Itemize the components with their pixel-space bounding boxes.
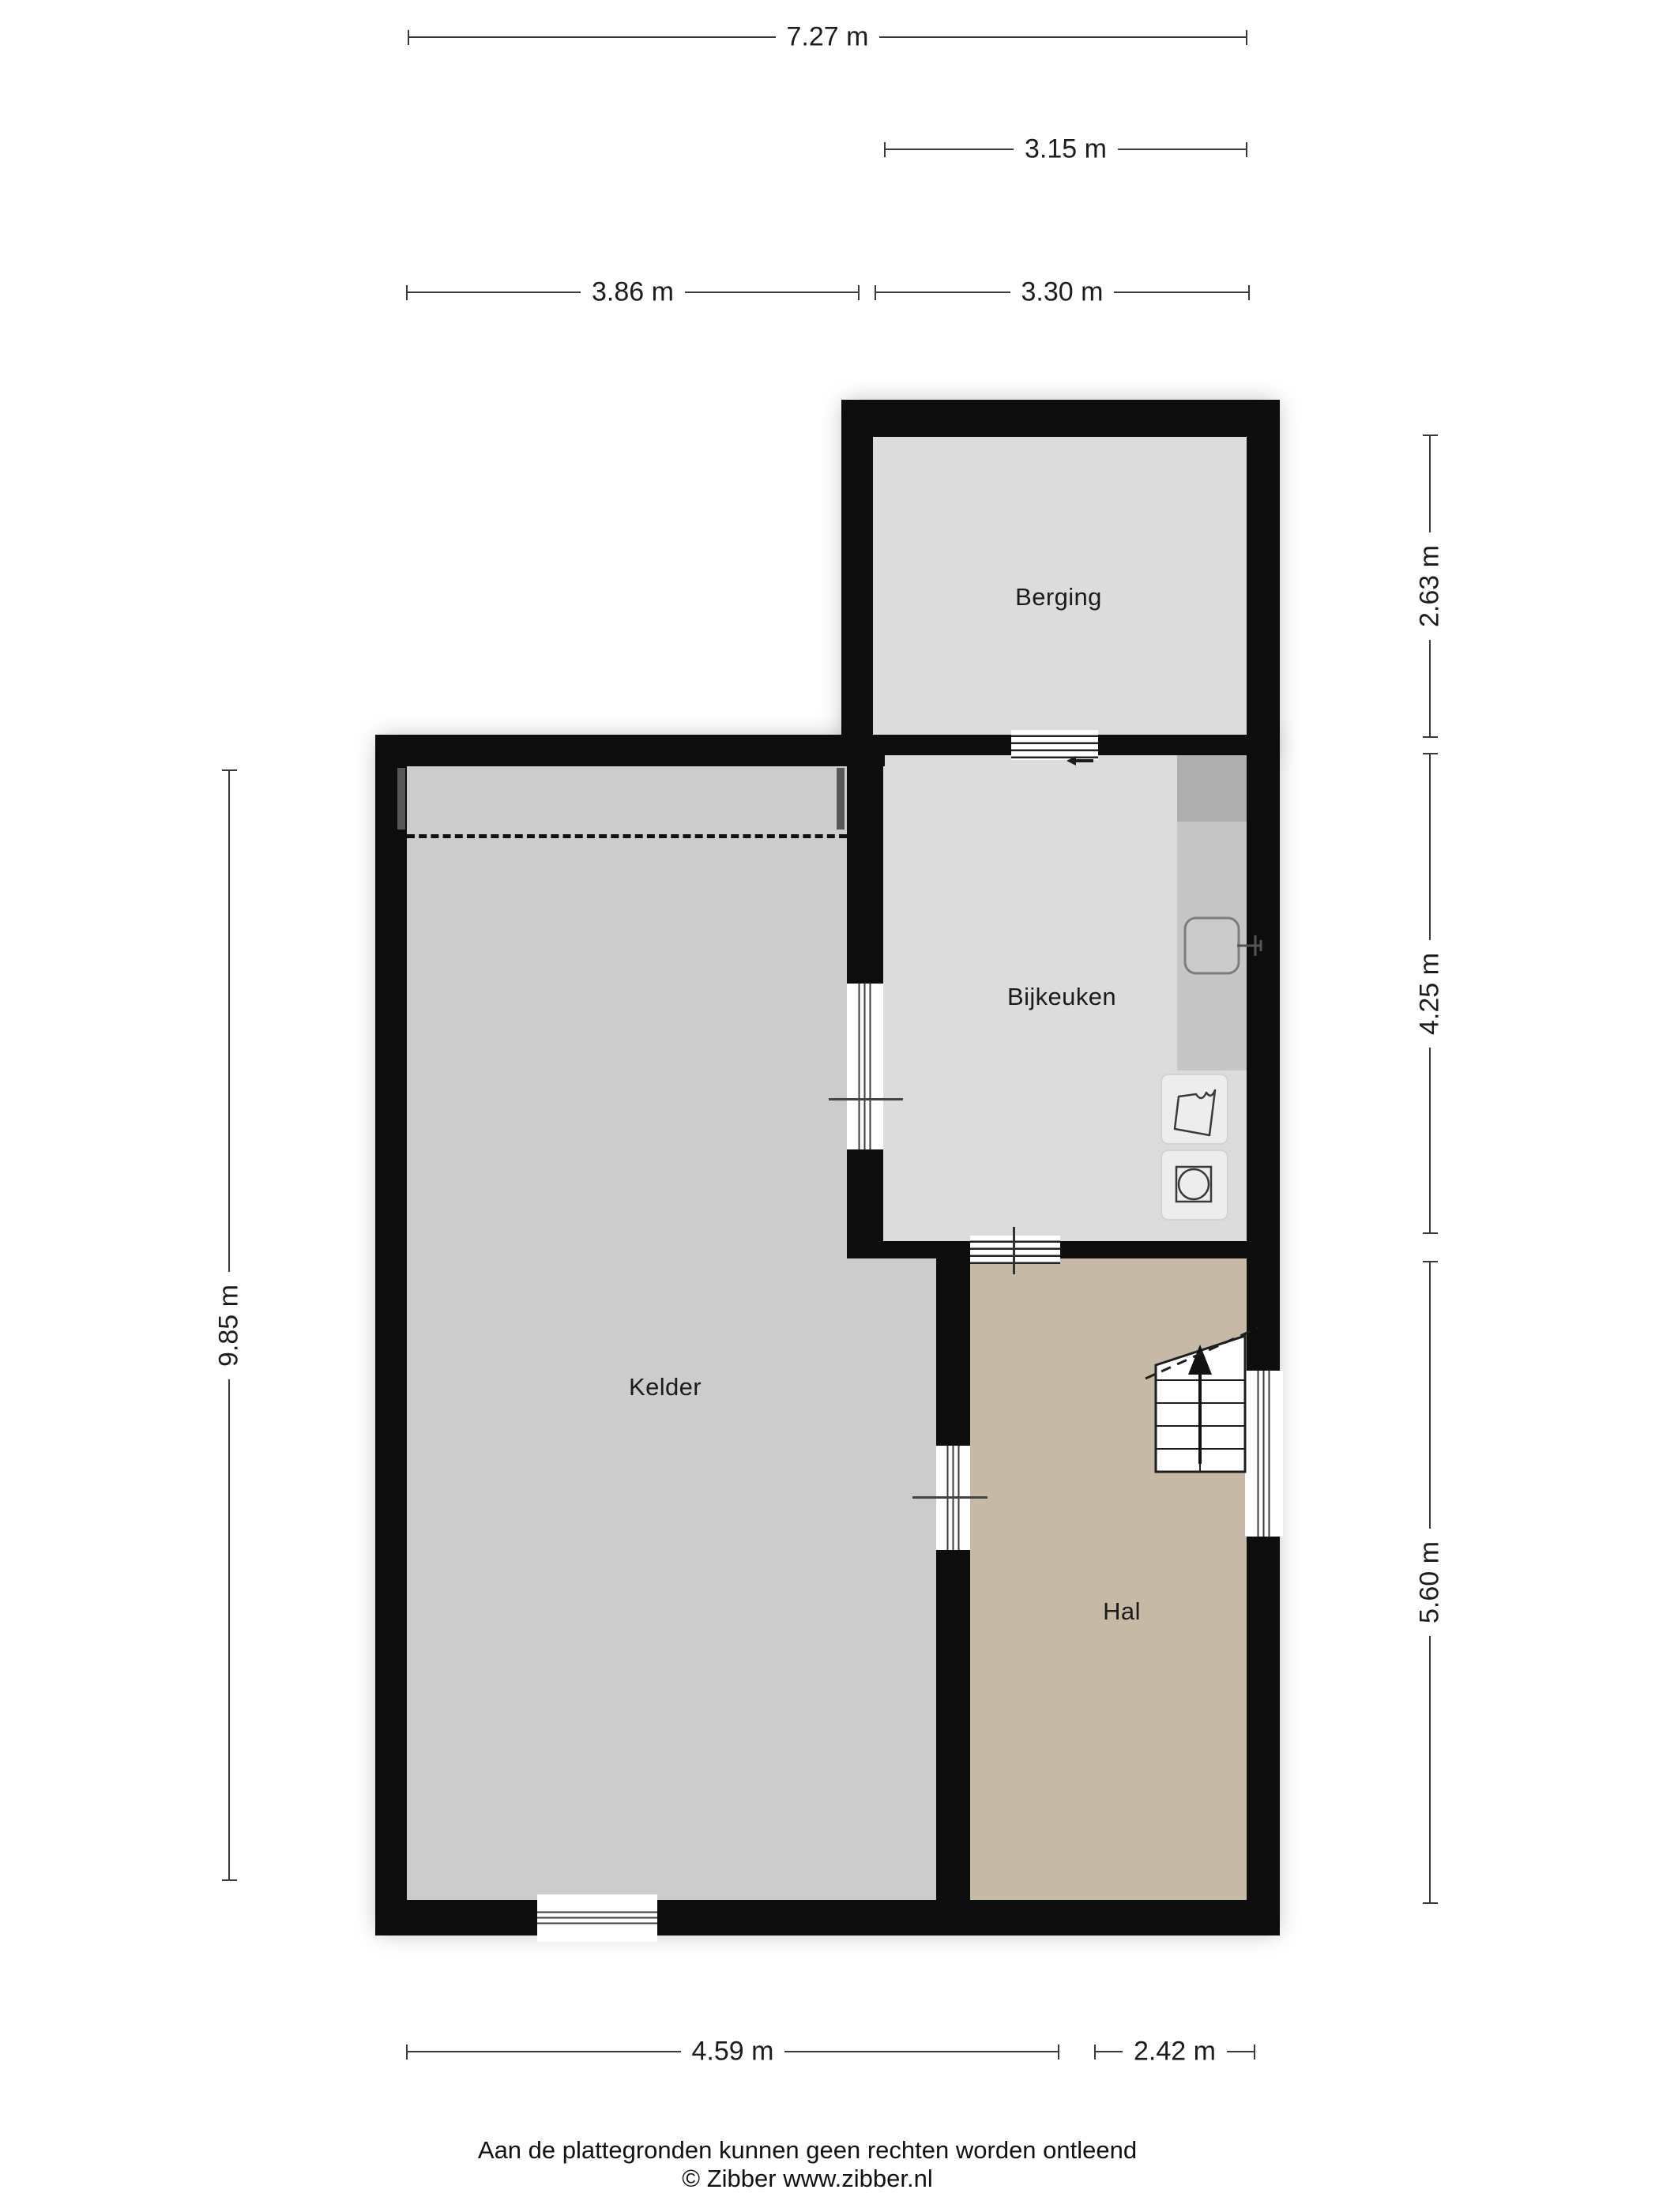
room-label-bijkeuken: Bijkeuken bbox=[1007, 983, 1116, 1011]
dim-bottom-hal: 2.42 m bbox=[1095, 2051, 1255, 2052]
dim-label: 3.15 m bbox=[1014, 134, 1118, 165]
dim-right-bijkeuken: 4.25 m bbox=[1429, 754, 1431, 1233]
door-bijkeuken-hal bbox=[970, 1236, 1060, 1264]
wall-kelder-top bbox=[375, 735, 885, 766]
footer-disclaimer: Aan de plattegronden kunnen geen rechten… bbox=[478, 2136, 1137, 2165]
window-glazing bbox=[537, 1912, 657, 1925]
dim-top-total: 7.27 m bbox=[408, 36, 1247, 38]
door-marker-line bbox=[1013, 1227, 1015, 1274]
window-kelder-bottom bbox=[537, 1894, 657, 1942]
kitchen-counter-upper bbox=[1177, 754, 1247, 822]
wall-berging-top bbox=[841, 400, 1280, 437]
floorplan-page: { "rooms": { "berging": { "label": "Berg… bbox=[0, 0, 1659, 2212]
room-label-berging: Berging bbox=[1015, 583, 1102, 611]
dim-label: 2.63 m bbox=[1415, 532, 1446, 640]
kelder-jamb-left bbox=[397, 768, 405, 829]
door-berging-bijkeuken bbox=[1011, 730, 1098, 760]
footer-copyright: © Zibber www.zibber.nl bbox=[682, 2165, 932, 2193]
wall-kelder-left bbox=[375, 735, 407, 1935]
dim-mid-right: 3.30 m bbox=[875, 292, 1249, 293]
dim-label: 3.30 m bbox=[1010, 277, 1115, 308]
hal-floor bbox=[970, 1258, 1247, 1900]
wall-berging-left bbox=[841, 400, 873, 754]
room-label-hal: Hal bbox=[1103, 1597, 1141, 1626]
kelder-floor bbox=[407, 766, 847, 1900]
kitchen-counter bbox=[1177, 822, 1247, 1070]
dim-label: 4.59 m bbox=[681, 2037, 785, 2067]
dim-left-total: 9.85 m bbox=[228, 770, 230, 1880]
wall-bottom-exterior bbox=[375, 1900, 1280, 1935]
dim-label: 3.86 m bbox=[581, 277, 685, 308]
room-label-kelder: Kelder bbox=[629, 1373, 702, 1401]
dim-bottom-kelder: 4.59 m bbox=[407, 2051, 1059, 2052]
dim-label: 7.27 m bbox=[776, 22, 880, 53]
kelder-jamb-right bbox=[837, 768, 845, 829]
kelder-floor-extension bbox=[847, 1258, 936, 1900]
dim-label: 2.42 m bbox=[1123, 2037, 1227, 2067]
wall-kelder-hal bbox=[936, 1241, 970, 1935]
dim-right-berging: 2.63 m bbox=[1429, 435, 1431, 737]
dim-top-berging: 3.15 m bbox=[885, 149, 1247, 150]
window-hal-right bbox=[1245, 1371, 1283, 1537]
dim-mid-left: 3.86 m bbox=[407, 292, 859, 293]
window-glazing bbox=[859, 984, 872, 1149]
window-glazing bbox=[1258, 1371, 1271, 1537]
kelder-dashed-line bbox=[407, 834, 847, 838]
dim-right-hal: 5.60 m bbox=[1429, 1262, 1431, 1903]
window-kelder-bijkeuken bbox=[847, 984, 883, 1149]
dim-label: 9.85 m bbox=[214, 1272, 245, 1379]
dim-label: 4.25 m bbox=[1415, 940, 1446, 1048]
wall-right-exterior bbox=[1247, 400, 1280, 1935]
window-sill-line bbox=[912, 1496, 987, 1499]
wall-bijkeuken-hal bbox=[847, 1241, 1280, 1258]
window-sill-line bbox=[829, 1098, 903, 1100]
dim-label: 5.60 m bbox=[1415, 1529, 1446, 1636]
